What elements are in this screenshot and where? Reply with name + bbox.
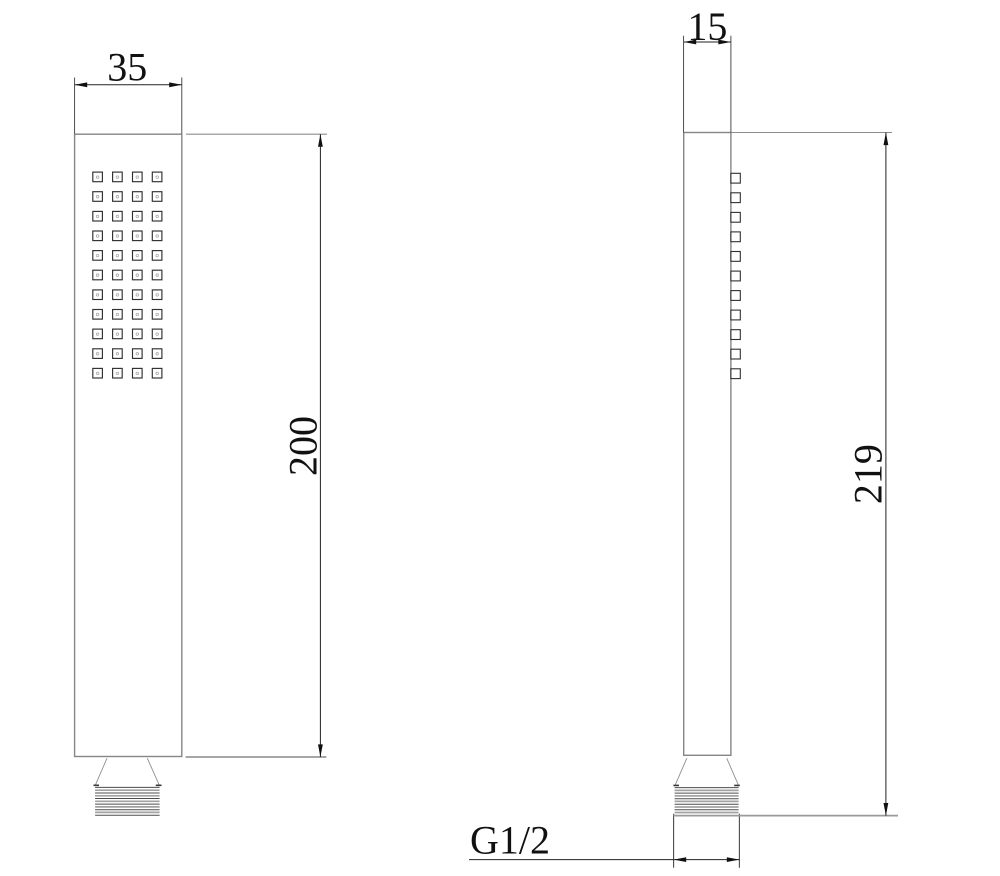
svg-text:200: 200 (281, 416, 326, 476)
svg-text:219: 219 (846, 444, 891, 504)
svg-text:35: 35 (107, 44, 147, 89)
svg-text:15: 15 (687, 4, 727, 49)
svg-text:G1/2: G1/2 (470, 818, 550, 863)
